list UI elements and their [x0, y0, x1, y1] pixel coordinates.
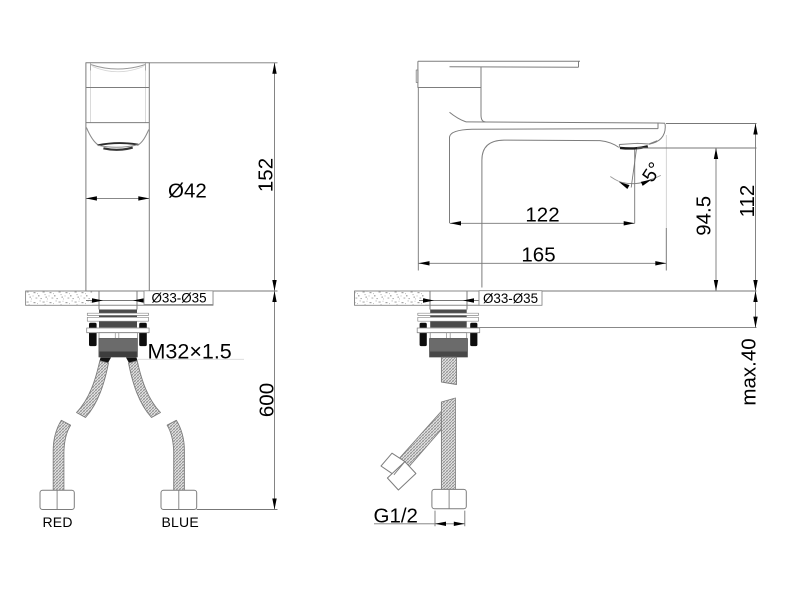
- svg-text:max.40: max.40: [738, 338, 761, 405]
- svg-text:BLUE: BLUE: [162, 514, 199, 530]
- svg-text:152: 152: [255, 158, 278, 192]
- svg-text:600: 600: [256, 383, 279, 417]
- svg-text:M32×1.5: M32×1.5: [148, 340, 232, 364]
- svg-text:Ø33-Ø35: Ø33-Ø35: [151, 291, 206, 306]
- svg-text:G1/2: G1/2: [374, 504, 418, 527]
- svg-text:RED: RED: [43, 514, 73, 530]
- svg-text:94.5: 94.5: [693, 196, 716, 236]
- svg-text:Ø42: Ø42: [168, 180, 207, 203]
- svg-text:165: 165: [521, 243, 555, 266]
- svg-text:122: 122: [525, 203, 559, 226]
- svg-text:Ø33-Ø35: Ø33-Ø35: [483, 291, 538, 306]
- svg-text:112: 112: [736, 185, 759, 218]
